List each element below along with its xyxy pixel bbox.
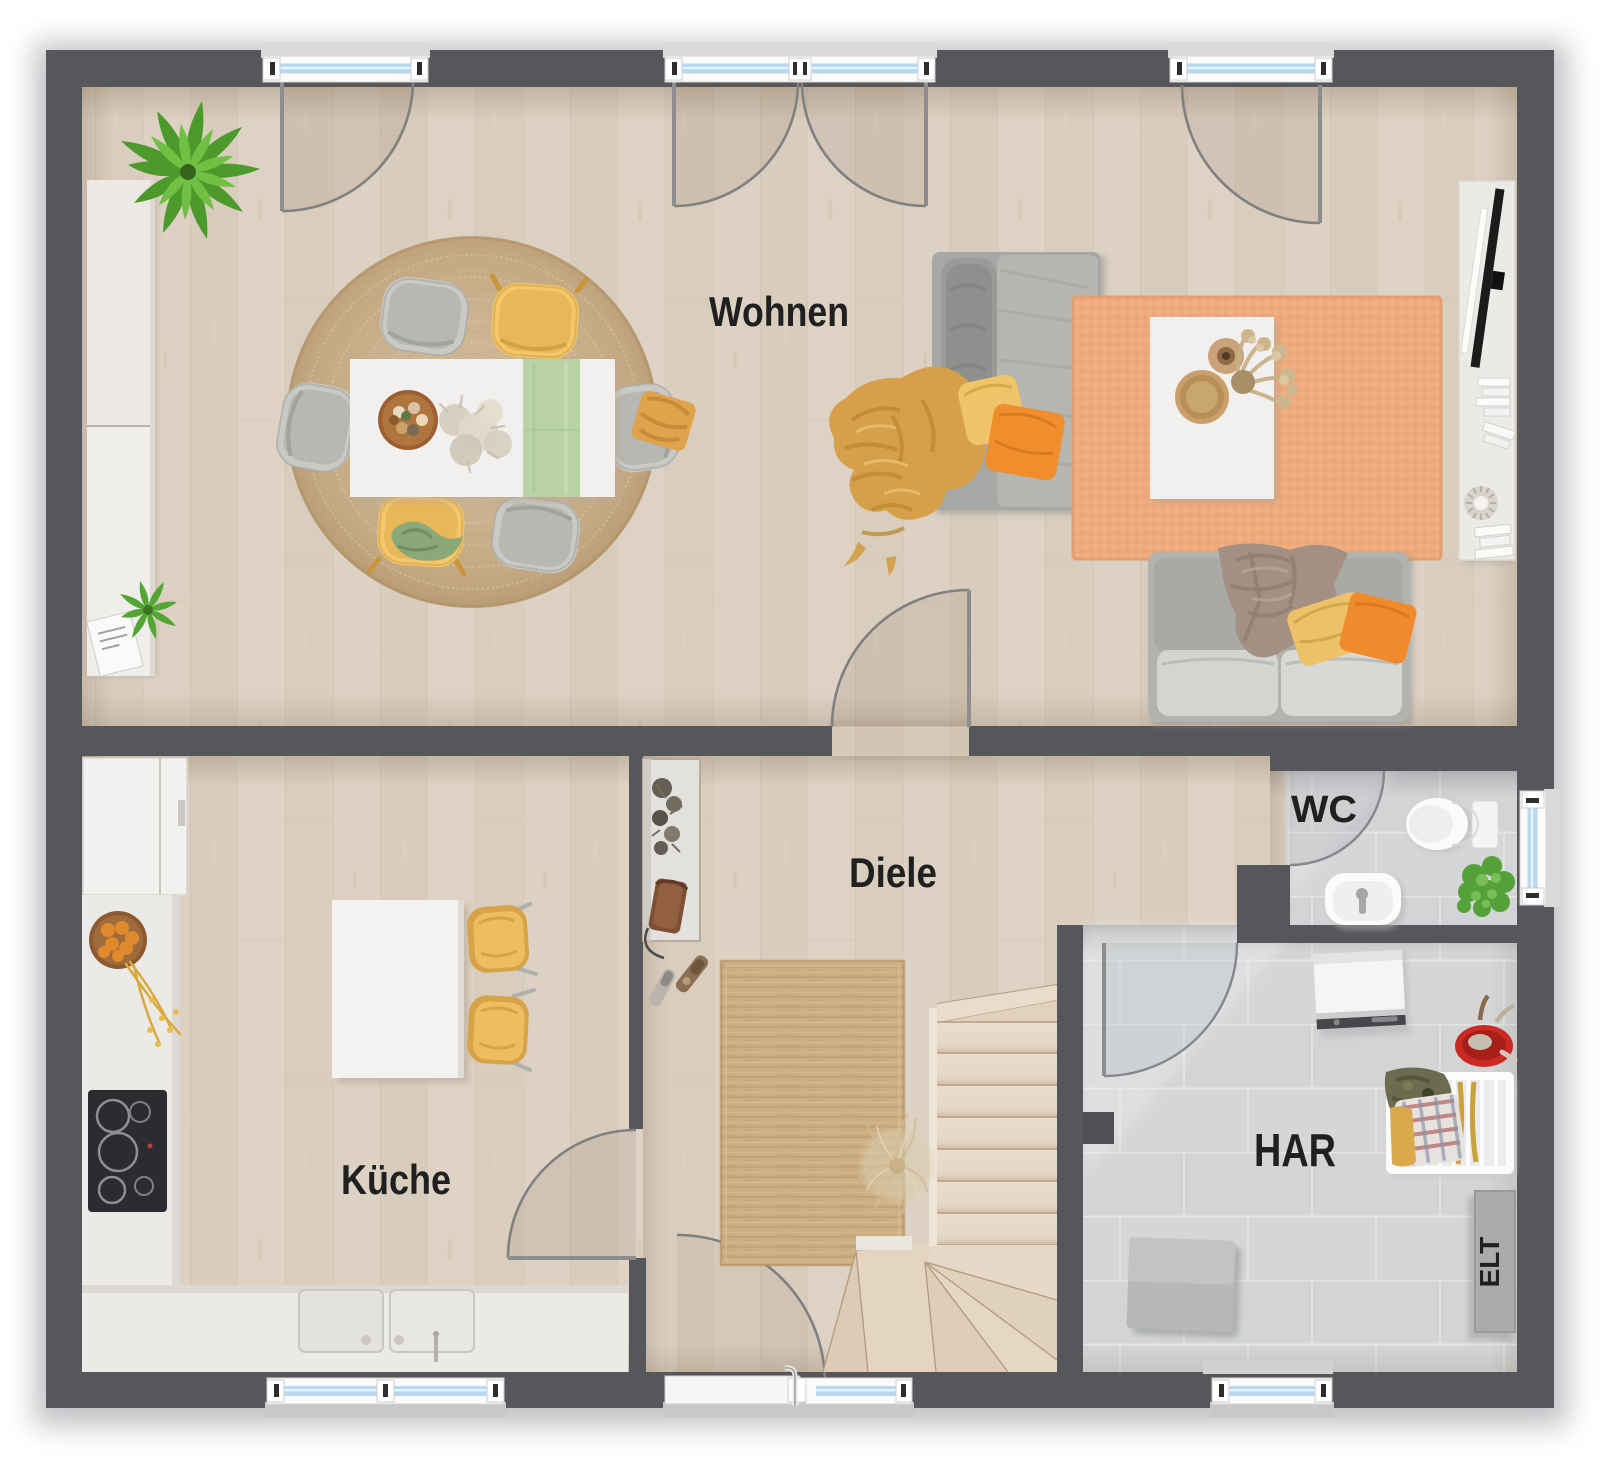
svg-text:ELT: ELT [1474, 1237, 1505, 1288]
svg-text:Diele: Diele [849, 849, 937, 896]
svg-text:HAR: HAR [1254, 1124, 1336, 1176]
svg-text:WC: WC [1291, 789, 1357, 831]
svg-text:Küche: Küche [341, 1156, 451, 1203]
svg-text:Wohnen: Wohnen [709, 288, 849, 335]
